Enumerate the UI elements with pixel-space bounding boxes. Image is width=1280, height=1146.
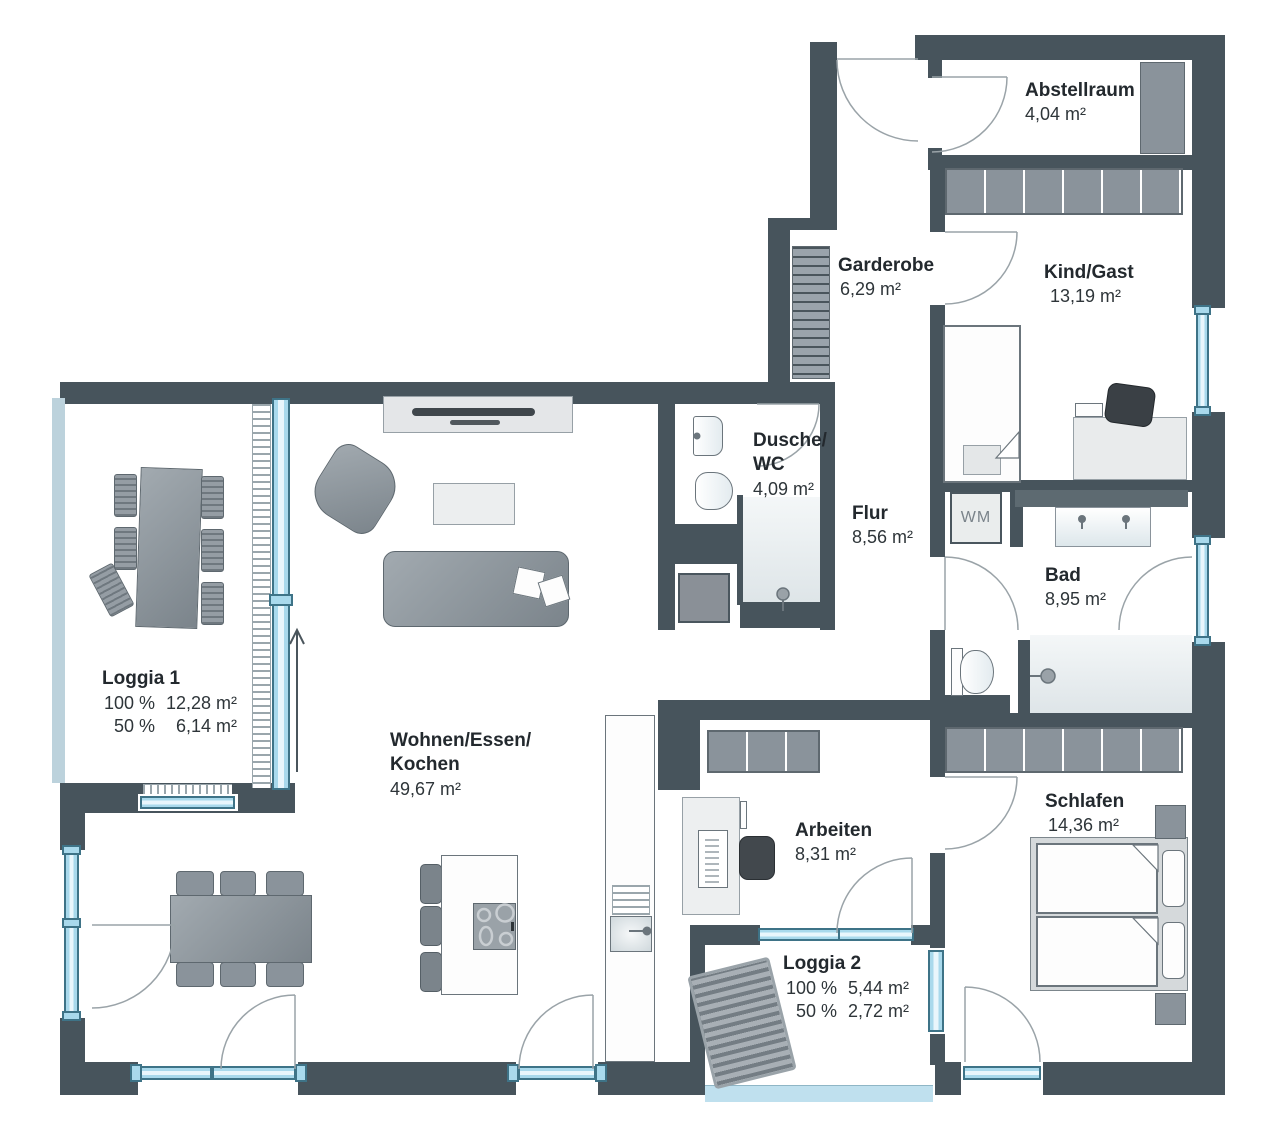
room-label-wohnen-1: Wohnen/Essen/ bbox=[390, 730, 531, 752]
room-label-schlafen: Schlafen bbox=[1045, 791, 1124, 813]
wall bbox=[658, 404, 675, 630]
window bbox=[140, 796, 235, 809]
window-cap bbox=[269, 594, 293, 606]
dining-table bbox=[170, 895, 312, 963]
room-label-arbeiten: Arbeiten bbox=[795, 820, 872, 842]
double-washbasin bbox=[1055, 507, 1151, 547]
loggia2-glazed-door bbox=[928, 950, 944, 1032]
bottom-door1-arc bbox=[221, 995, 295, 1069]
window bbox=[1196, 543, 1209, 638]
desk-side bbox=[740, 801, 747, 829]
pillow bbox=[1162, 850, 1185, 907]
window bbox=[140, 1066, 212, 1080]
room-area-abstellraum: 4,04 m² bbox=[1025, 104, 1086, 125]
kind-gast-door-arc bbox=[945, 232, 1017, 304]
loggia1-area-100: 12,28 m² bbox=[155, 692, 237, 715]
loggia-chair bbox=[88, 562, 134, 617]
room-label-kind-gast: Kind/Gast bbox=[1044, 262, 1134, 284]
room-label-bad: Bad bbox=[1045, 565, 1081, 587]
window-cap bbox=[62, 845, 81, 855]
dining-chair bbox=[220, 871, 256, 896]
dining-chair bbox=[220, 962, 256, 987]
glazed-door bbox=[963, 1066, 1041, 1080]
paper-tray bbox=[1075, 403, 1103, 417]
window-cap bbox=[1194, 636, 1211, 646]
window-cap bbox=[62, 1011, 81, 1021]
nightstand bbox=[1155, 993, 1186, 1025]
pillow bbox=[1162, 922, 1185, 979]
room-label-dusche-wc-1: Dusche/ bbox=[753, 430, 827, 452]
room-label-loggia2: Loggia 2 bbox=[783, 953, 861, 975]
loggia-table bbox=[135, 467, 203, 629]
dining-chair bbox=[266, 871, 304, 896]
room-area-kind-gast: 13,19 m² bbox=[1050, 286, 1121, 307]
wardrobe bbox=[945, 168, 1183, 215]
shelf-cabinet bbox=[707, 730, 820, 773]
dining-chair bbox=[176, 962, 214, 987]
wardrobe bbox=[945, 727, 1183, 773]
keyboard bbox=[698, 830, 728, 888]
wall bbox=[930, 713, 1192, 728]
room-area-flur: 8,56 m² bbox=[852, 527, 913, 548]
armchair bbox=[304, 438, 406, 540]
loggia1-pct-50: 50 % bbox=[98, 715, 155, 738]
washing-machine: WM bbox=[950, 492, 1002, 544]
wall bbox=[705, 925, 760, 945]
glazed-door bbox=[518, 1066, 596, 1080]
room-label-dusche-wc-2: WC bbox=[753, 454, 785, 476]
kitchen-sink bbox=[610, 916, 652, 952]
bottom-door2-arc bbox=[519, 995, 593, 1069]
room-label-loggia1: Loggia 1 bbox=[102, 668, 180, 690]
bar-stool bbox=[420, 952, 442, 992]
loggia2-pct-50: 50 % bbox=[780, 1000, 837, 1023]
window-cap bbox=[295, 1064, 307, 1082]
window-cap bbox=[595, 1064, 607, 1082]
slide-direction-arrow bbox=[290, 630, 304, 772]
abstellraum-door-arc bbox=[932, 77, 1007, 152]
window-cap bbox=[507, 1064, 519, 1082]
office-chair bbox=[739, 836, 775, 880]
entry-door-arc bbox=[837, 59, 918, 141]
loggia1-area-50: 6,14 m² bbox=[155, 715, 237, 738]
loggia-chair bbox=[201, 529, 224, 572]
sideboard-handle bbox=[450, 420, 500, 425]
room-label-flur: Flur bbox=[852, 503, 888, 525]
loggia1-row-100: 100 % 12,28 m² bbox=[98, 692, 237, 715]
toilet-bowl bbox=[695, 472, 733, 510]
wall bbox=[930, 720, 945, 777]
wall bbox=[911, 925, 935, 945]
window bbox=[758, 928, 840, 941]
loggia2-railing bbox=[705, 1085, 933, 1102]
wall bbox=[740, 600, 835, 628]
floor-plan: WM bbox=[0, 0, 1280, 1146]
wall bbox=[915, 35, 1225, 60]
bad-window-arc bbox=[1119, 557, 1192, 630]
loggia-chair bbox=[114, 527, 137, 570]
window-cap bbox=[1194, 305, 1211, 315]
wall bbox=[675, 524, 738, 564]
shower-area bbox=[1030, 635, 1192, 713]
wall bbox=[930, 170, 945, 232]
bad-door-arc bbox=[945, 557, 1018, 630]
toilet-bowl bbox=[960, 650, 994, 694]
wall bbox=[940, 695, 1010, 715]
loggia1-row-50: 50 % 6,14 m² bbox=[98, 715, 237, 738]
glazed-door bbox=[838, 928, 914, 941]
bed-foot bbox=[963, 445, 1001, 475]
cooktop bbox=[473, 903, 516, 950]
sink-drainer bbox=[612, 885, 650, 915]
schlafen-door-arc bbox=[945, 777, 1017, 849]
room-label-garderobe: Garderobe bbox=[838, 255, 934, 277]
window-door bbox=[64, 853, 79, 1013]
room-label-abstellraum: Abstellraum bbox=[1025, 80, 1135, 102]
bar-stool bbox=[420, 864, 442, 904]
room-area-bad: 8,95 m² bbox=[1045, 589, 1106, 610]
wall bbox=[658, 700, 700, 790]
bar-stool bbox=[420, 906, 442, 946]
room-area-garderobe: 6,29 m² bbox=[840, 279, 901, 300]
glazed-door bbox=[212, 1066, 296, 1080]
loggia-chair bbox=[201, 582, 224, 625]
wall bbox=[930, 480, 945, 557]
loggia1-pct-100: 100 % bbox=[98, 692, 155, 715]
window-cap bbox=[62, 918, 81, 928]
room-area-schlafen: 14,36 m² bbox=[1048, 815, 1119, 836]
loggia-chair bbox=[114, 474, 137, 517]
dining-chair bbox=[176, 871, 214, 896]
window-cap bbox=[130, 1064, 142, 1082]
window bbox=[1196, 313, 1209, 408]
loggia2-pct-100: 100 % bbox=[780, 977, 837, 1000]
shaft bbox=[678, 573, 730, 623]
mattress bbox=[1036, 843, 1158, 914]
schlafen-terrace-door-arc bbox=[965, 987, 1040, 1062]
sideboard-handle bbox=[412, 408, 535, 416]
dining-chair bbox=[266, 962, 304, 987]
nightstand bbox=[1155, 805, 1186, 839]
loggia2-row-50: 50 % 2,72 m² bbox=[780, 1000, 909, 1023]
room-area-dusche-wc: 4,09 m² bbox=[753, 479, 814, 500]
coat-rack bbox=[792, 246, 830, 379]
washing-machine-label: WM bbox=[961, 509, 991, 527]
window-cap bbox=[1194, 535, 1211, 545]
loggia2-area-50: 2,72 m² bbox=[837, 1000, 909, 1023]
washbasin bbox=[693, 416, 723, 456]
mattress bbox=[1036, 916, 1158, 987]
storage-shelf bbox=[1140, 62, 1185, 154]
wall bbox=[768, 227, 790, 404]
dining-terrace-door-arc bbox=[92, 925, 175, 1008]
loggia1-railing bbox=[52, 398, 65, 783]
coffee-table bbox=[433, 483, 515, 525]
room-area-wohnen: 49,67 m² bbox=[390, 779, 461, 800]
desk bbox=[1073, 417, 1187, 480]
shower-area bbox=[743, 497, 820, 602]
loggia2-area-100: 5,44 m² bbox=[837, 977, 909, 1000]
arbeiten-door-arc bbox=[837, 858, 912, 933]
window-cap bbox=[1194, 406, 1211, 416]
desk-chair bbox=[1103, 382, 1156, 428]
room-area-arbeiten: 8,31 m² bbox=[795, 844, 856, 865]
room-label-wohnen-2: Kochen bbox=[390, 754, 460, 776]
loggia-chair bbox=[201, 476, 224, 519]
wall bbox=[1018, 640, 1030, 717]
loggia2-row-100: 100 % 5,44 m² bbox=[780, 977, 909, 1000]
wall bbox=[928, 58, 942, 78]
wall bbox=[810, 42, 837, 230]
bath-mirror-shelf bbox=[1015, 490, 1188, 507]
